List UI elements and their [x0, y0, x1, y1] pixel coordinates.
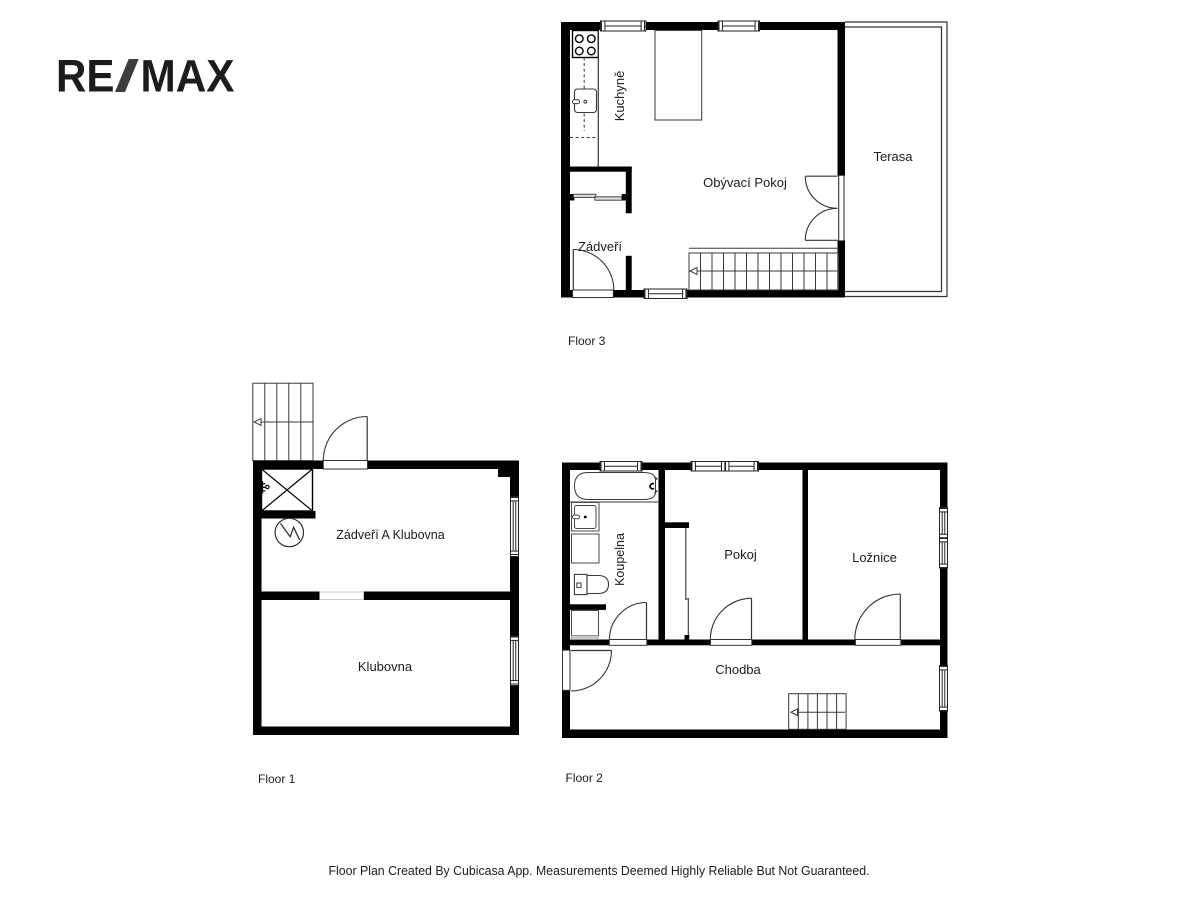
svg-text:Zádveří: Zádveří: [578, 239, 622, 254]
svg-text:Obývací Pokoj: Obývací Pokoj: [703, 175, 787, 190]
svg-text:Ložnice: Ložnice: [852, 550, 897, 565]
svg-text:Chodba: Chodba: [715, 662, 761, 677]
svg-text:Kuchyně: Kuchyně: [612, 71, 627, 122]
svg-text:Koupelna: Koupelna: [613, 533, 627, 586]
svg-text:Floor 2: Floor 2: [566, 771, 604, 785]
svg-text:MAX: MAX: [141, 51, 235, 102]
svg-text:Floor 3: Floor 3: [568, 334, 606, 348]
svg-text:RE: RE: [56, 51, 115, 102]
svg-text:Zádveří A Klubovna: Zádveří A Klubovna: [336, 528, 444, 542]
svg-text:Floor Plan Created By Cubicasa: Floor Plan Created By Cubicasa App. Meas…: [329, 863, 870, 878]
svg-text:Floor 1: Floor 1: [258, 772, 296, 786]
svg-text:Terasa: Terasa: [873, 149, 913, 164]
svg-text:Pokoj: Pokoj: [724, 547, 757, 562]
svg-text:Klubovna: Klubovna: [358, 659, 413, 674]
